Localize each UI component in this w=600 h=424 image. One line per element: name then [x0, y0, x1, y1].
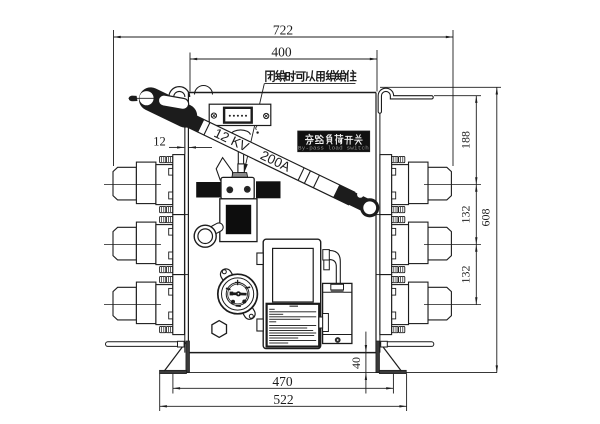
svg-text:By-pass load switch: By-pass load switch: [298, 145, 369, 152]
svg-text:40: 40: [349, 357, 363, 369]
svg-text:722: 722: [273, 23, 293, 38]
svg-text:470: 470: [272, 374, 293, 389]
svg-text:608: 608: [479, 209, 493, 227]
svg-text:132: 132: [459, 206, 473, 224]
svg-text:188: 188: [459, 131, 473, 149]
svg-text:400: 400: [271, 45, 292, 60]
svg-text:522: 522: [273, 392, 293, 407]
svg-text:132: 132: [459, 266, 473, 284]
svg-text:12: 12: [153, 135, 166, 149]
